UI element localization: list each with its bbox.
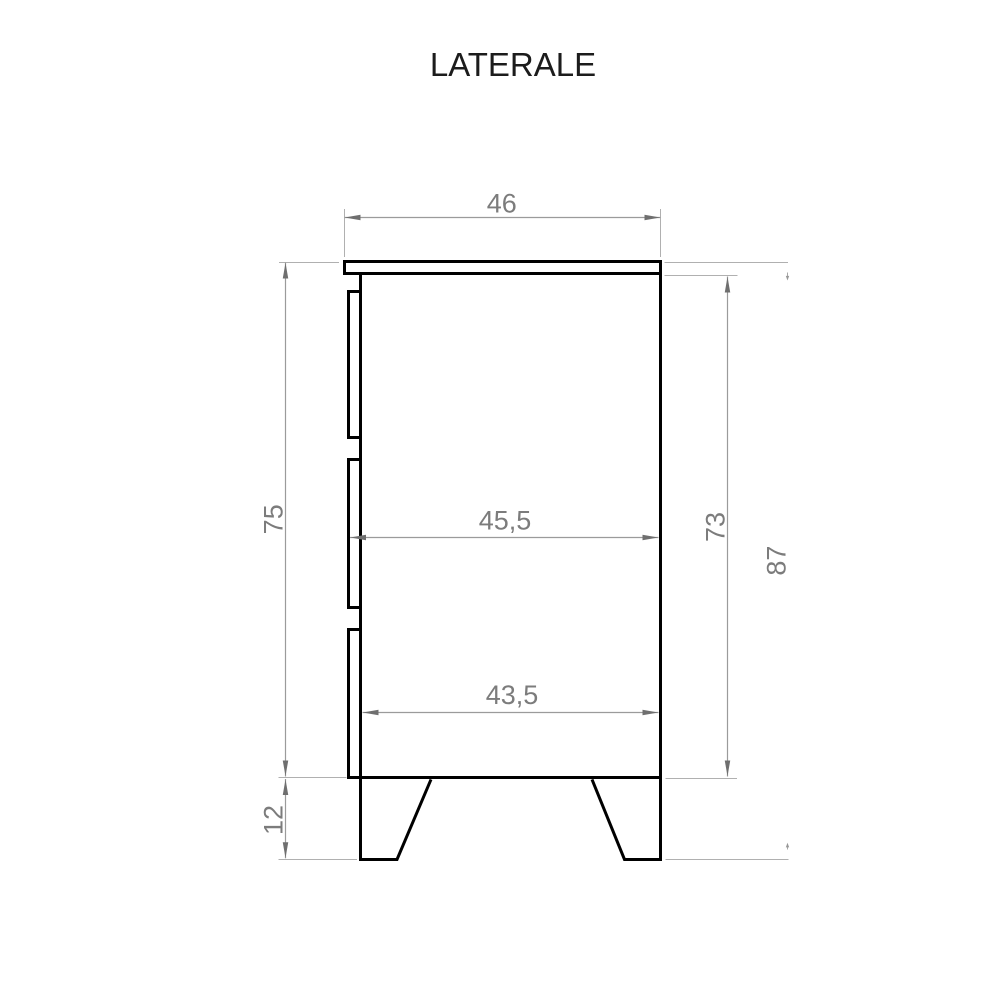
svg-text:12: 12 [258, 805, 288, 835]
svg-text:LATERALE: LATERALE [430, 46, 596, 83]
svg-text:87: 87 [762, 546, 792, 576]
svg-text:46: 46 [487, 189, 517, 219]
svg-text:45,5: 45,5 [479, 506, 532, 536]
svg-text:43,5: 43,5 [486, 680, 539, 710]
svg-text:73: 73 [701, 512, 731, 542]
svg-text:75: 75 [258, 504, 288, 534]
